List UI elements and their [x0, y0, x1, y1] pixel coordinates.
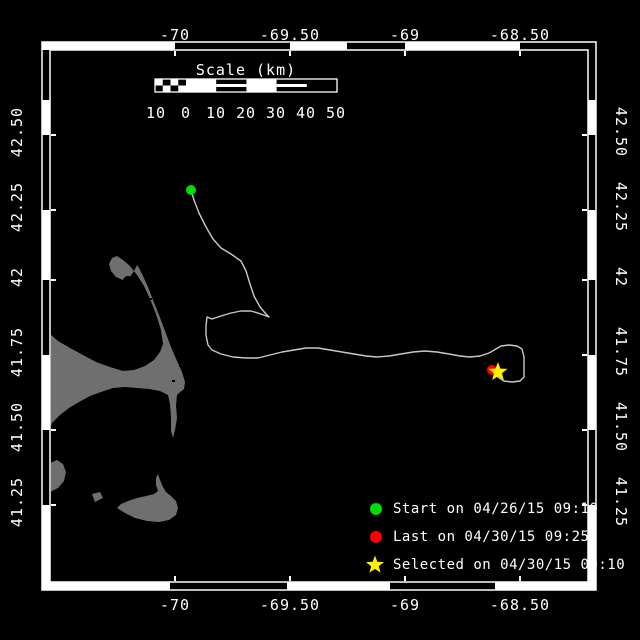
tick-mark-bottom [174, 576, 176, 581]
tick-mark-left [51, 279, 56, 281]
landmass-cape-cod [50, 256, 185, 438]
scalebar-label-4: 30 [266, 104, 286, 122]
legend-start-icon [370, 503, 382, 515]
scalebar-label-6: 50 [326, 104, 346, 122]
axis-label-left-5: 41.25 [8, 477, 26, 527]
axis-label-top-1: -69.50 [260, 26, 320, 44]
island-nantucket [117, 474, 178, 522]
island-west [50, 460, 66, 492]
border-band-top-segment [42, 42, 175, 50]
axis-label-right-0: 42.50 [612, 107, 630, 157]
axis-label-left-1: 42.25 [8, 182, 26, 232]
land-speck [179, 364, 181, 367]
scalebar-label-2: 10 [206, 104, 226, 122]
drifter-track[interactable] [191, 190, 524, 382]
tick-mark-right [582, 279, 587, 281]
border-band-bottom-segment [287, 582, 390, 590]
tick-mark-left [51, 209, 56, 211]
tick-mark-top [404, 51, 406, 56]
tick-mark-left [51, 504, 56, 506]
border-band-right-segment [588, 355, 596, 430]
scalebar-segment-stripe [216, 84, 246, 87]
tick-mark-top [519, 51, 521, 56]
border-band-right-segment [588, 210, 596, 280]
legend-label-2: Selected on 04/30/15 09:10 [393, 557, 625, 573]
axis-label-top-0: -70 [160, 26, 190, 44]
axis-label-bottom-3: -68.50 [490, 596, 550, 614]
legend-label-1: Last on 04/30/15 09:25 [393, 529, 589, 545]
scalebar-check [163, 86, 171, 93]
border-band-left-segment [42, 210, 50, 280]
axis-label-left-0: 42.50 [8, 107, 26, 157]
axis-label-left-4: 41.50 [8, 402, 26, 452]
scalebar-check [171, 79, 179, 86]
axis-label-right-5: 41.25 [612, 477, 630, 527]
plot-area [50, 185, 524, 522]
harbor-notch [122, 276, 134, 292]
tick-mark-top [174, 51, 176, 56]
start-position-marker[interactable] [186, 185, 196, 195]
axis-label-top-2: -69 [390, 26, 420, 44]
land-speck [175, 351, 178, 354]
tick-mark-bottom [404, 576, 406, 581]
scalebar-segment-filled [186, 79, 216, 92]
legend-label-0: Start on 04/26/15 09:10 [393, 501, 598, 517]
border-band-bottom-segment [42, 582, 170, 590]
land-speck [157, 305, 159, 307]
axis-label-left-2: 42 [8, 267, 26, 287]
island-small [92, 492, 103, 502]
axis-label-right-2: 42 [612, 267, 630, 287]
axis-label-bottom-0: -70 [160, 596, 190, 614]
tick-mark-right [582, 429, 587, 431]
scalebar-label-5: 40 [296, 104, 316, 122]
border-band-bottom-segment [495, 582, 596, 590]
scalebar-segment-stripe [277, 84, 307, 87]
scalebar-segment-filled [246, 79, 276, 92]
axis-label-top-3: -68.50 [490, 26, 550, 44]
scalebar-label-1: 0 [181, 104, 191, 122]
scalebar-title: Scale (km) [196, 61, 296, 79]
tick-mark-left [51, 134, 56, 136]
tick-mark-bottom [289, 576, 291, 581]
border-band-left-segment [42, 505, 50, 582]
land-speck [172, 380, 175, 382]
axis-label-right-4: 41.50 [612, 402, 630, 452]
axis-label-right-1: 42.25 [612, 182, 630, 232]
axis-label-right-3: 41.75 [612, 327, 630, 377]
border-band-left-segment [42, 355, 50, 430]
border-band-right-segment [588, 100, 596, 135]
tick-mark-right [582, 134, 587, 136]
map-plot: Scale (km) -70-69.50-69-68.50-70-69.50-6… [0, 0, 640, 640]
scalebar-label-0: 10 [146, 104, 166, 122]
axis-label-bottom-1: -69.50 [260, 596, 320, 614]
legend-selected-icon [366, 556, 384, 573]
tick-mark-left [51, 429, 56, 431]
tick-mark-bottom [519, 576, 521, 581]
border-band-left-segment [42, 100, 50, 135]
axis-label-left-3: 41.75 [8, 327, 26, 377]
tick-mark-top [289, 51, 291, 56]
scalebar-label-3: 20 [236, 104, 256, 122]
legend-last-icon [370, 531, 382, 543]
scalebar-check [178, 86, 186, 93]
scalebar-check [155, 79, 163, 86]
land-speck [150, 298, 152, 300]
tick-mark-right [582, 354, 587, 356]
tick-mark-right [582, 209, 587, 211]
axis-label-bottom-2: -69 [390, 596, 420, 614]
